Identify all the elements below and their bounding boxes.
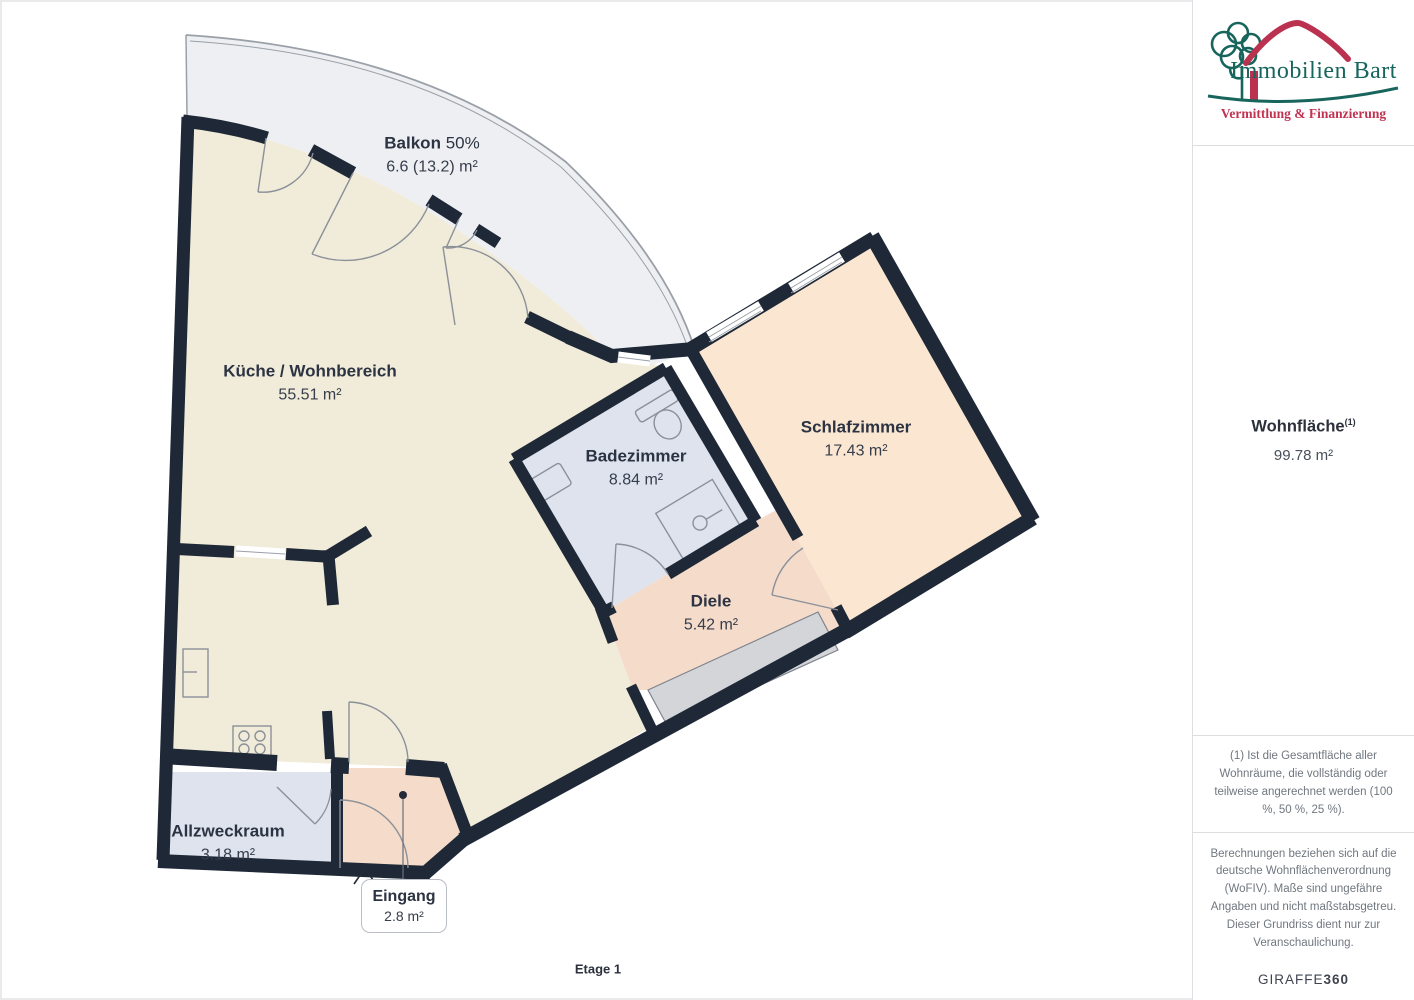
floor-label: Etage 1: [575, 962, 621, 977]
giraffe360-brand: GIRAFFE360: [1258, 972, 1349, 987]
sidebar: Immobilien Bart Vermittlung & Finanzieru…: [1192, 0, 1414, 1000]
roof-icon: [1246, 23, 1348, 63]
brand-suffix: 360: [1323, 972, 1349, 987]
living-area-label: Wohnfläche(1): [1251, 417, 1355, 437]
footnote-box-1: (1) Ist die Gesamtfläche aller Wohnräume…: [1193, 736, 1414, 833]
underline-swoosh: [1208, 88, 1398, 101]
living-area-box: Wohnfläche(1) 99.78 m²: [1193, 146, 1414, 736]
diele-area: 5.42 m²: [684, 616, 738, 634]
schlafzimmer-name: Schlafzimmer: [801, 418, 912, 438]
footnote-1-text: (1) Ist die Gesamtfläche aller Wohnräume…: [1210, 748, 1397, 819]
brand-name: GIRAFFE: [1258, 972, 1324, 987]
balkon-name: Balkon: [384, 134, 441, 153]
footnote-2-text: Berechnungen beziehen sich auf die deuts…: [1208, 846, 1399, 953]
company-logo: Immobilien Bart Vermittlung & Finanzieru…: [1202, 14, 1406, 132]
eingang-area: 2.8 m²: [384, 908, 424, 924]
label-schlafzimmer: Schlafzimmer 17.43 m²: [801, 418, 912, 461]
allzweckraum-name: Allzweckraum: [171, 822, 284, 842]
kueche-name: Küche / Wohnbereich: [223, 362, 397, 382]
balkon-share: 50%: [446, 134, 480, 153]
badezimmer-name: Badezimmer: [585, 447, 686, 467]
schlafzimmer-area: 17.43 m²: [801, 442, 912, 460]
diele-name: Diele: [684, 592, 738, 612]
balkon-area: 6.6 (13.2) m²: [384, 158, 479, 176]
kueche-area: 55.51 m²: [223, 386, 397, 404]
logo-subtitle: Vermittlung & Finanzierung: [1202, 106, 1406, 122]
label-kueche: Küche / Wohnbereich 55.51 m²: [223, 362, 397, 405]
footnote-box-2: Berechnungen beziehen sich auf die deuts…: [1193, 833, 1414, 1000]
callout-anchor-dot: [399, 791, 407, 799]
label-allzweckraum: Allzweckraum 3.18 m²: [171, 822, 284, 865]
allzweckraum-area: 3.18 m²: [171, 846, 284, 864]
living-area-label-text: Wohnfläche: [1251, 417, 1344, 435]
wall-stub-entry: [327, 711, 330, 759]
label-balkon: Balkon 50% 6.6 (13.2) m²: [384, 134, 479, 177]
label-badezimmer: Badezimmer 8.84 m²: [585, 447, 686, 490]
label-eingang-callout: Eingang 2.8 m²: [361, 879, 447, 933]
logo-box: Immobilien Bart Vermittlung & Finanzieru…: [1193, 0, 1414, 146]
floorplan-area: Balkon 50% 6.6 (13.2) m² Küche / Wohnber…: [0, 0, 1193, 1000]
badezimmer-area: 8.84 m²: [585, 471, 686, 489]
logo-title: Immobilien Bart: [1202, 58, 1406, 85]
living-area-value: 99.78 m²: [1274, 447, 1333, 464]
label-diele: Diele 5.42 m²: [684, 592, 738, 635]
balkon-left-edge: [186, 35, 187, 118]
eingang-name: Eingang: [372, 888, 435, 906]
floorplan-page: { "plan": { "floor_label": "Etage 1", "r…: [0, 0, 1414, 1000]
living-area-footnote-ref: (1): [1345, 417, 1356, 427]
